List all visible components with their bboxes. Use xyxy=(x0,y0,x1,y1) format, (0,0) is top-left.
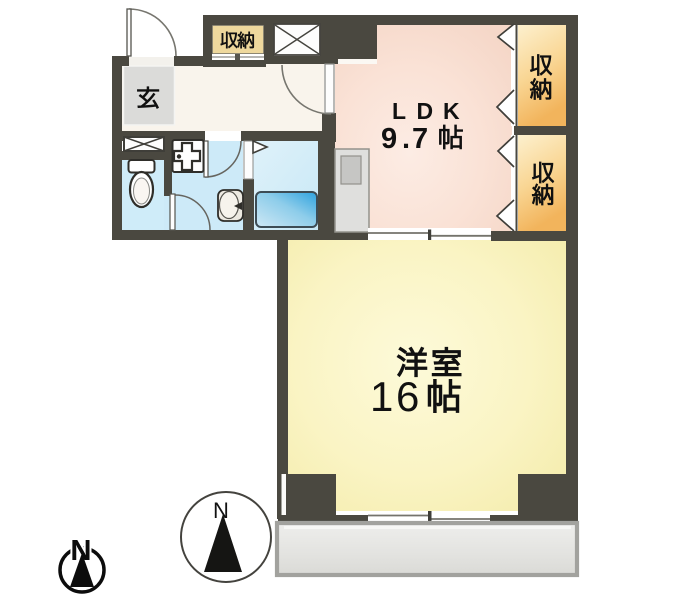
svg-text:9: 9 xyxy=(381,123,397,155)
svg-text:N: N xyxy=(213,498,229,523)
svg-text:D: D xyxy=(417,98,434,124)
svg-text:7: 7 xyxy=(412,123,428,155)
svg-text:.: . xyxy=(402,123,410,155)
svg-text:K: K xyxy=(443,98,460,124)
svg-text:6: 6 xyxy=(396,373,419,420)
svg-text:1: 1 xyxy=(370,373,393,420)
svg-text:L: L xyxy=(392,98,406,124)
